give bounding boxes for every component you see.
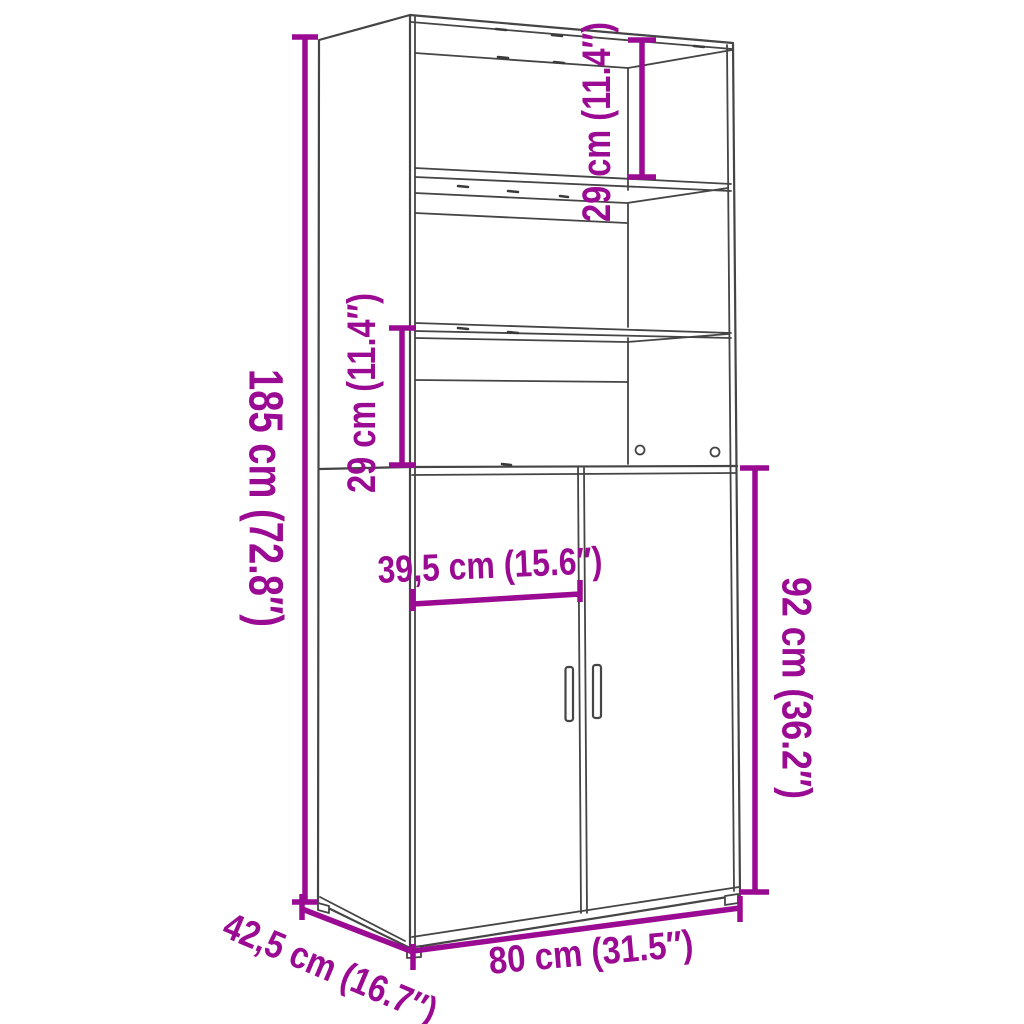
dim-door-width: 39,5 cm (15.6″) bbox=[377, 540, 604, 611]
dim-door-height-line bbox=[740, 468, 769, 892]
dim-height-label: 185 cm (72.8″) bbox=[239, 369, 292, 627]
shelf-pin-hole-2 bbox=[711, 448, 720, 457]
shelf-upper bbox=[415, 168, 731, 223]
foot-back-left bbox=[318, 903, 329, 913]
dim-shelf-top-line bbox=[628, 40, 656, 177]
dim-height-line bbox=[292, 37, 318, 902]
shelf-lower bbox=[415, 323, 731, 382]
dim-door-height-label: 92 cm (36.2″) bbox=[774, 577, 821, 799]
door-handle-right bbox=[593, 665, 601, 718]
door-handle-left bbox=[566, 667, 574, 721]
dim-shelf-top: 29 cm (11.4″) bbox=[575, 22, 656, 222]
dim-shelf-bottom-line bbox=[389, 328, 416, 465]
foot-front-right bbox=[725, 894, 738, 905]
dimension-annotations: 185 cm (72.8″) 29 cm (11.4″) 29 cm (11.4… bbox=[217, 22, 821, 1024]
cabinet-right-edge-inner bbox=[727, 45, 734, 891]
cabinet-top-edge-inner bbox=[411, 22, 732, 49]
door-top-edge bbox=[412, 473, 736, 475]
dim-shelf-bottom-label: 29 cm (11.4″) bbox=[340, 293, 384, 493]
dim-shelf-bottom: 29 cm (11.4″) bbox=[340, 293, 416, 493]
dimension-diagram-svg: 185 cm (72.8″) 29 cm (11.4″) 29 cm (11.4… bbox=[0, 0, 1024, 1024]
dim-door-height: 92 cm (36.2″) bbox=[740, 468, 821, 892]
product-dimension-image: 185 cm (72.8″) 29 cm (11.4″) 29 cm (11.4… bbox=[0, 0, 1024, 1024]
dim-height: 185 cm (72.8″) bbox=[239, 37, 319, 902]
door-gap-divider bbox=[578, 468, 587, 913]
shelf-pin-hole-1 bbox=[636, 446, 645, 455]
back-panel-top-edge bbox=[415, 50, 732, 68]
dim-width-label: 80 cm (31.5″) bbox=[487, 923, 695, 983]
dim-shelf-top-label: 29 cm (11.4″) bbox=[575, 22, 619, 222]
dim-door-width-label: 39,5 cm (15.6″) bbox=[377, 540, 604, 592]
